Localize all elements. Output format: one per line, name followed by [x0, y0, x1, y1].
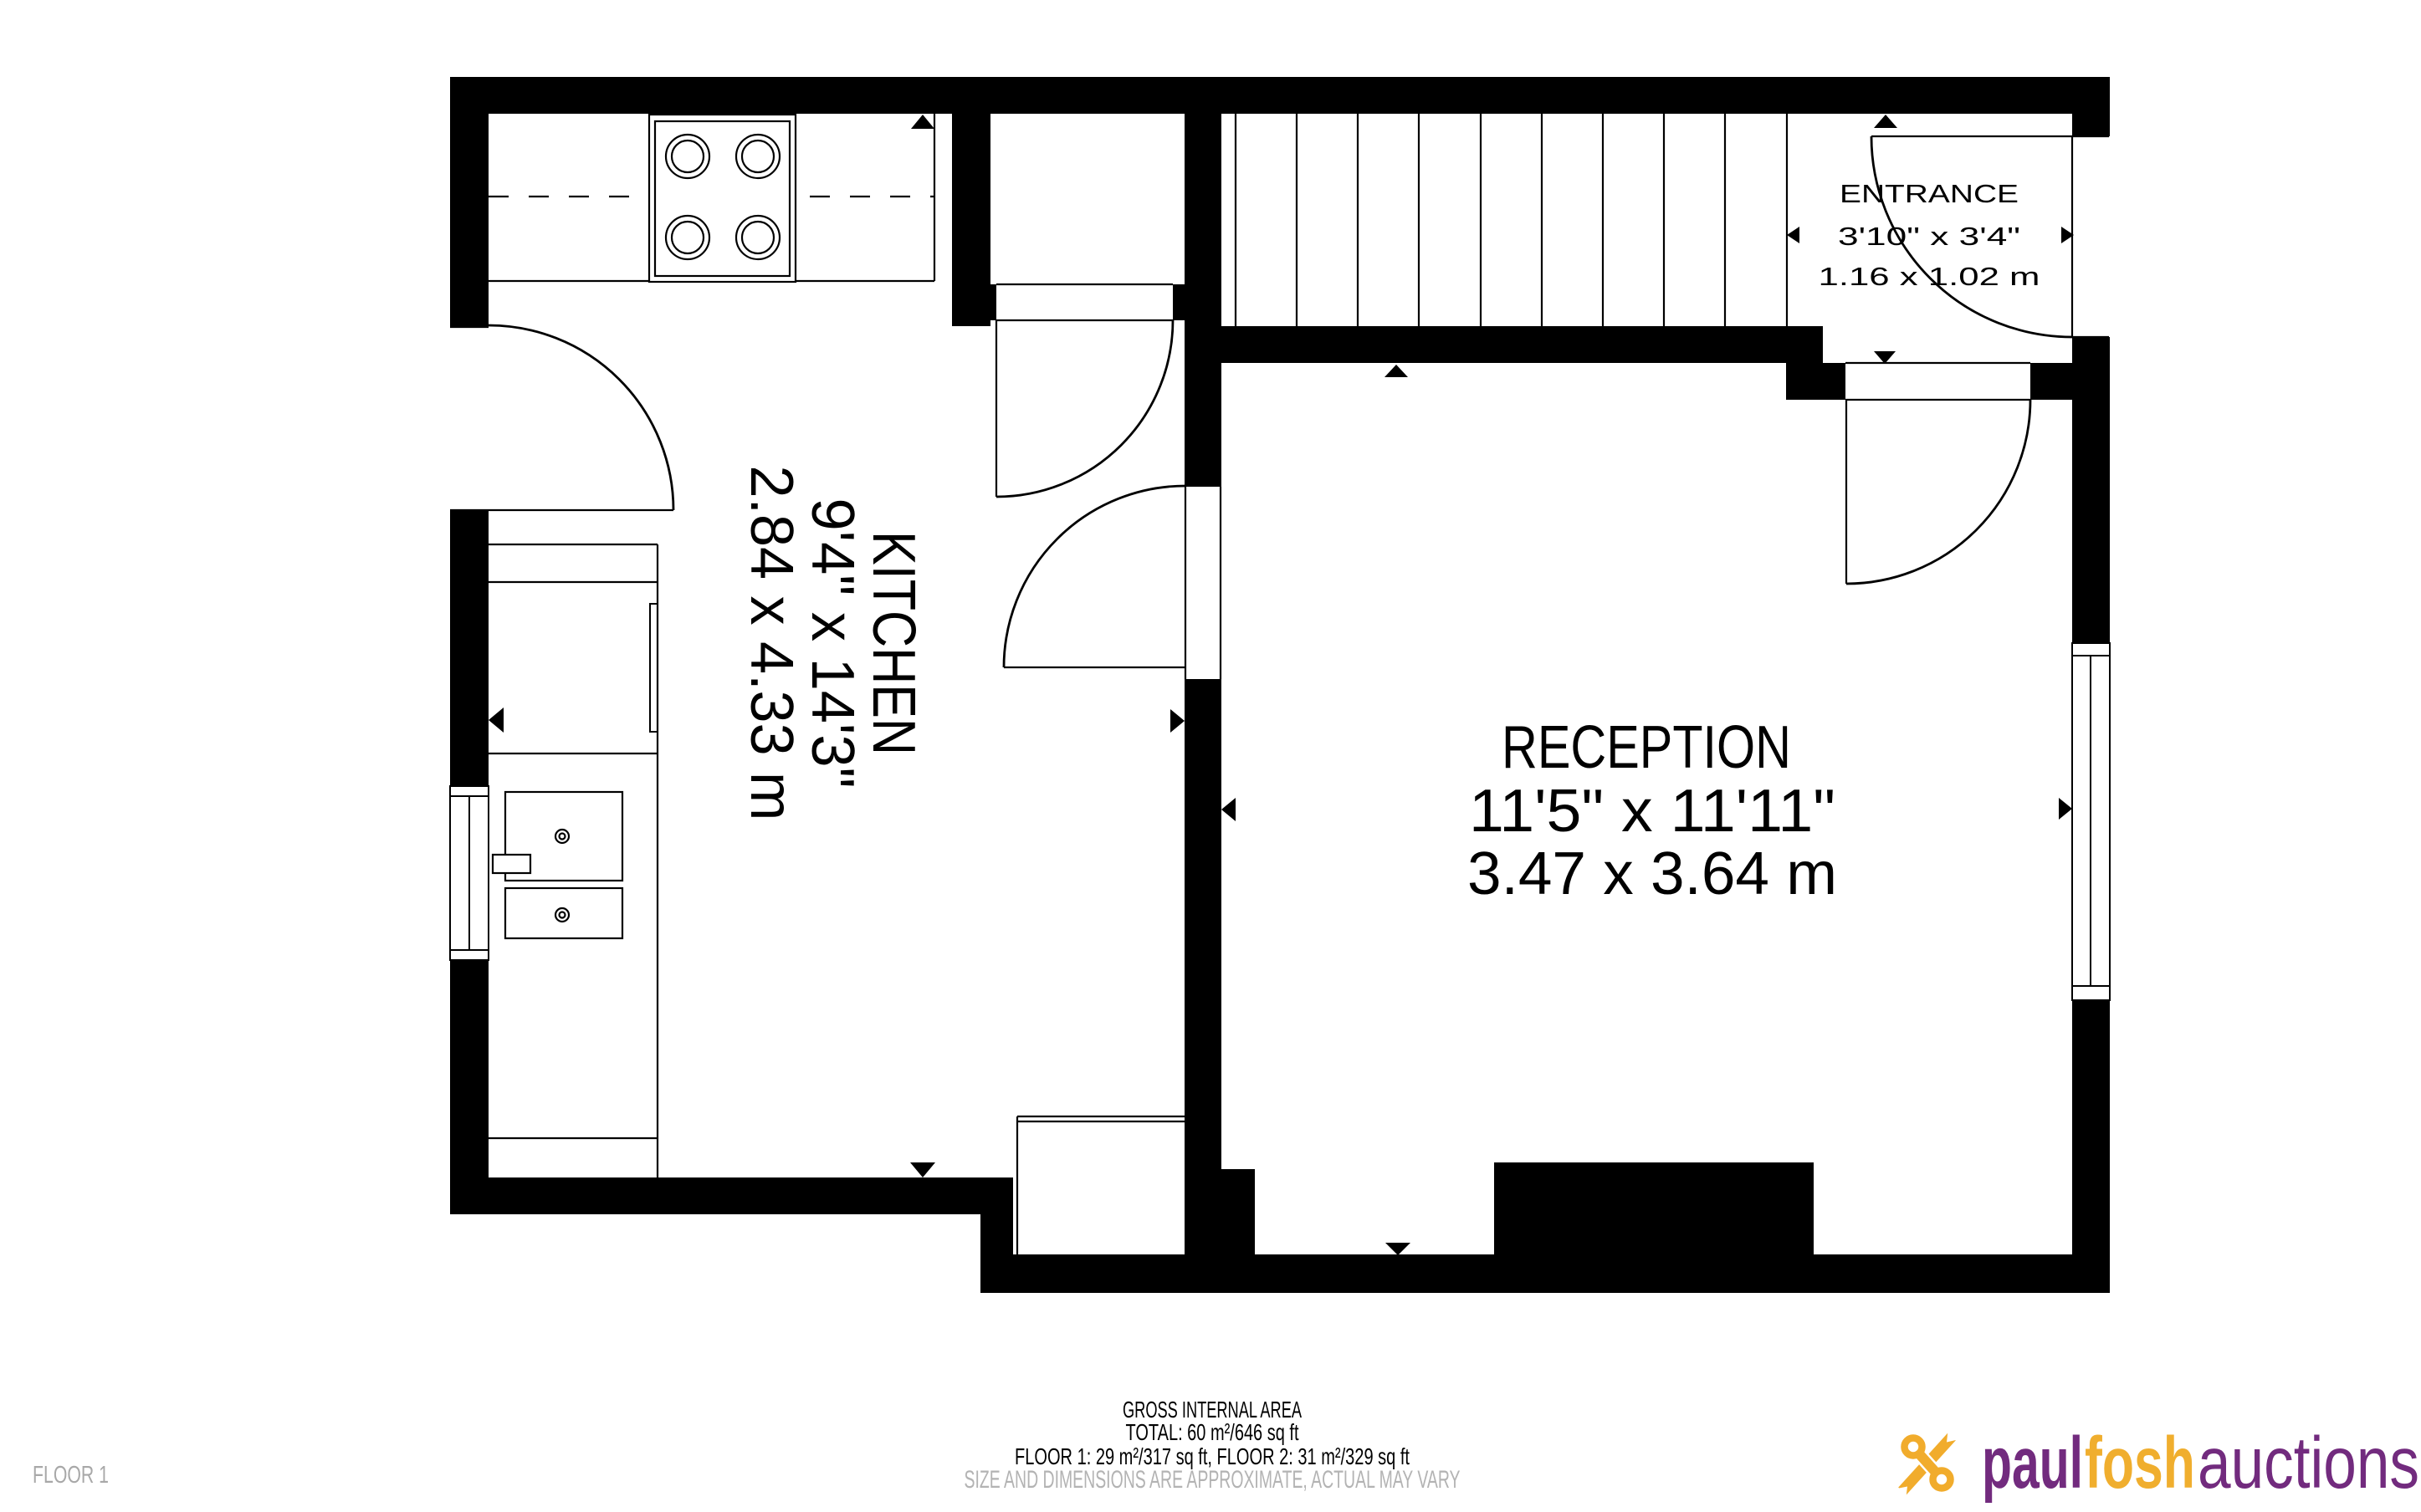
- svg-text:TOTAL: 60 m²/646 sq ft: TOTAL: 60 m²/646 sq ft: [1126, 1419, 1299, 1445]
- svg-text:ENTRANCE: ENTRANCE: [1840, 179, 2019, 208]
- svg-text:auctions: auctions: [2198, 1423, 2419, 1504]
- svg-text:paul: paul: [1982, 1423, 2083, 1504]
- svg-text:9'4" x 14'3": 9'4" x 14'3": [799, 498, 866, 789]
- svg-text:3.47 x 3.64 m: 3.47 x 3.64 m: [1467, 840, 1837, 907]
- svg-text:SIZE AND DIMENSIONS ARE APPROX: SIZE AND DIMENSIONS ARE APPROXIMATE, ACT…: [965, 1466, 1461, 1494]
- svg-text:KITCHEN: KITCHEN: [860, 531, 927, 755]
- svg-text:11'5" x 11'11": 11'5" x 11'11": [1469, 778, 1835, 845]
- svg-text:3'10" x 3'4": 3'10" x 3'4": [1838, 222, 2020, 251]
- svg-text:1.16 x 1.02 m: 1.16 x 1.02 m: [1819, 262, 2040, 291]
- svg-text:RECEPTION: RECEPTION: [1502, 714, 1791, 781]
- svg-text:2.84 x 4.33 m: 2.84 x 4.33 m: [738, 466, 805, 821]
- svg-text:fosh: fosh: [2085, 1423, 2195, 1504]
- svg-text:FLOOR 1: FLOOR 1: [33, 1462, 109, 1489]
